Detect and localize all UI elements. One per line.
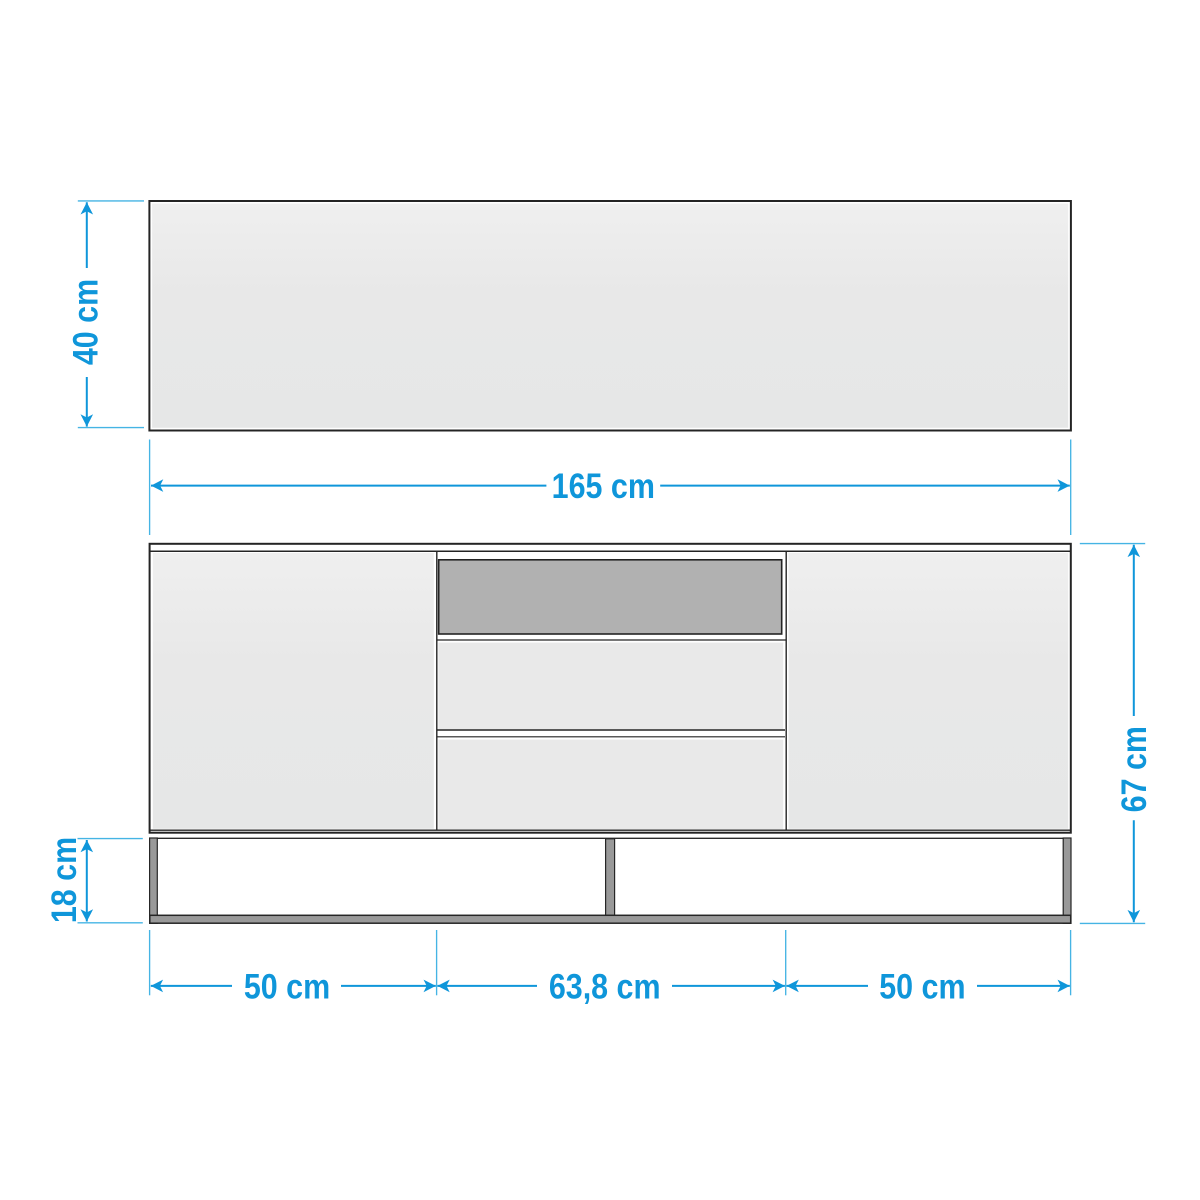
svg-text:67 cm: 67 cm [1114, 726, 1153, 812]
svg-text:165 cm: 165 cm [552, 466, 655, 505]
svg-text:50 cm: 50 cm [879, 966, 965, 1005]
svg-text:40 cm: 40 cm [66, 279, 105, 365]
svg-text:63,8 cm: 63,8 cm [549, 966, 661, 1005]
svg-text:50 cm: 50 cm [244, 966, 330, 1005]
svg-text:18 cm: 18 cm [44, 837, 83, 923]
